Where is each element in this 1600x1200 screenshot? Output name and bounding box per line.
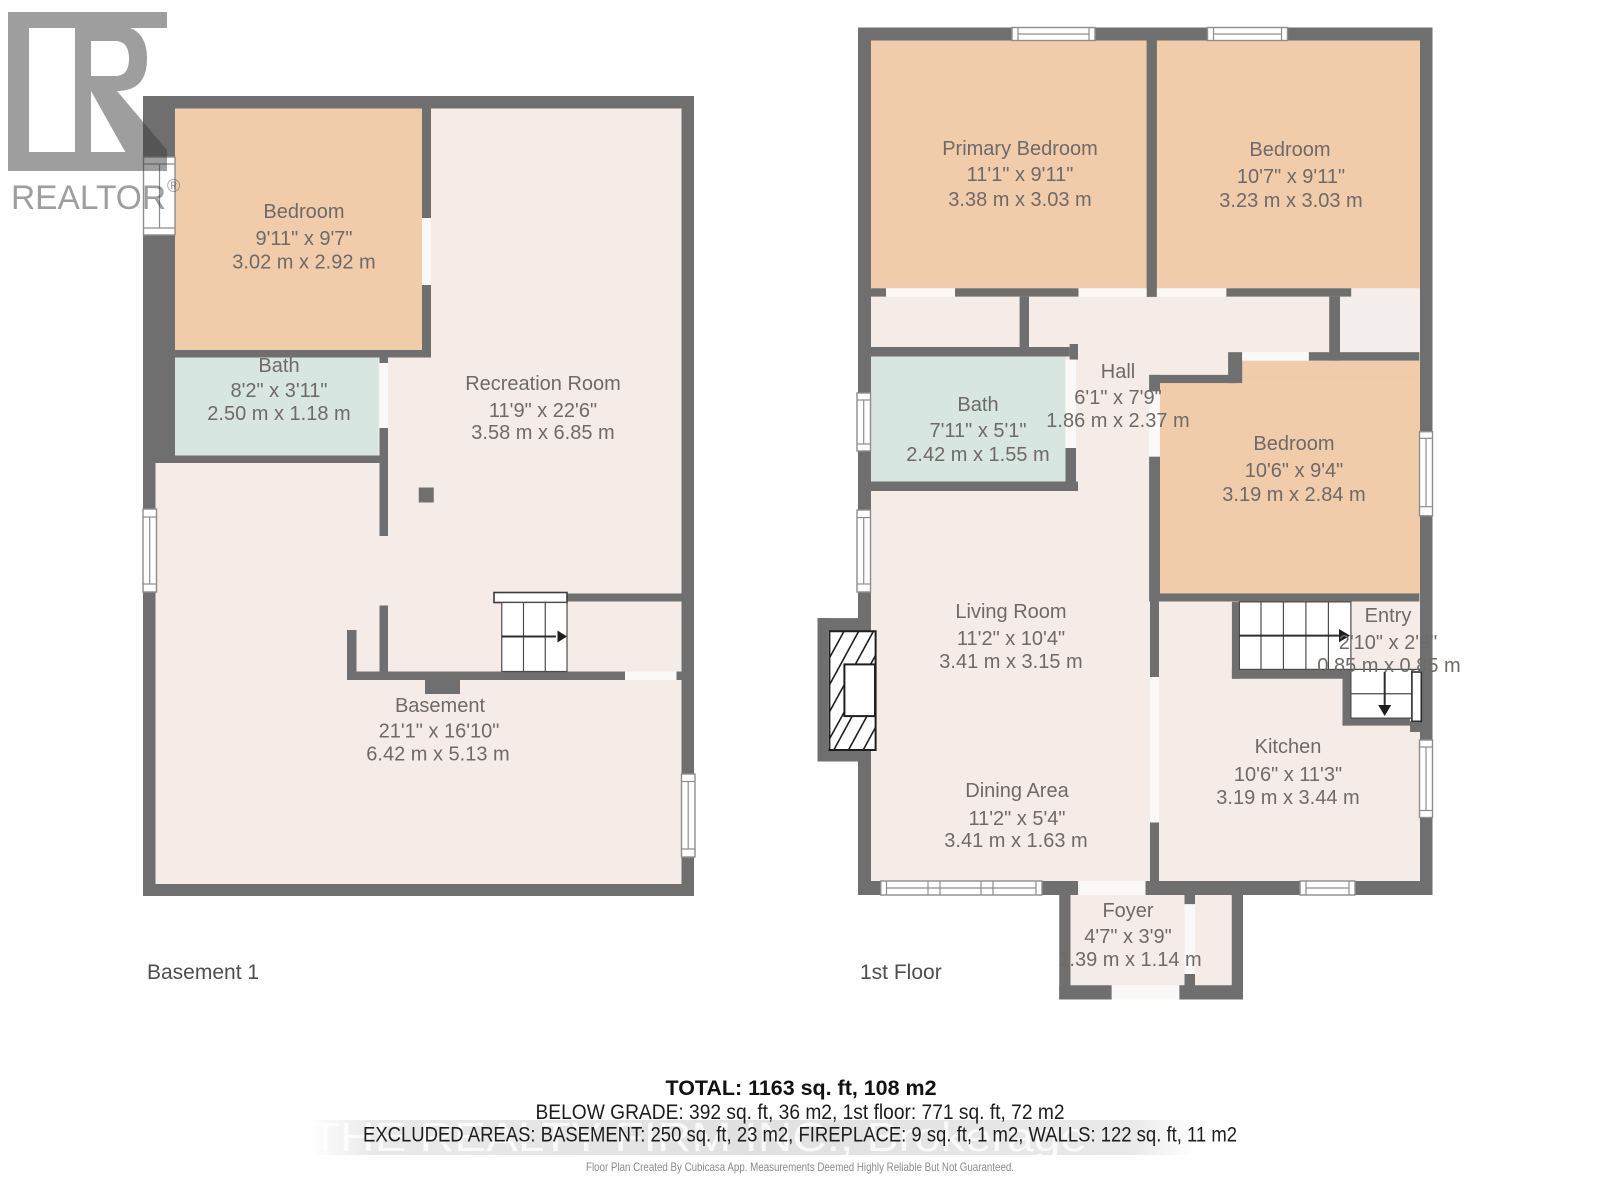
svg-text:®: ® [167, 176, 180, 196]
svg-text:3.38 m x 3.03 m: 3.38 m x 3.03 m [948, 189, 1091, 211]
svg-text:Bedroom: Bedroom [1249, 139, 1330, 161]
svg-text:Hall: Hall [1101, 361, 1135, 383]
svg-text:9'11" x 9'7": 9'11" x 9'7" [255, 228, 352, 250]
svg-text:10'6" x 9'4": 10'6" x 9'4" [1245, 460, 1344, 482]
svg-text:1st Floor: 1st Floor [860, 961, 942, 984]
svg-text:11'2" x 5'4": 11'2" x 5'4" [968, 808, 1065, 830]
svg-text:10'6" x 11'3": 10'6" x 11'3" [1234, 764, 1342, 786]
svg-text:1.86 m x 2.37 m: 1.86 m x 2.37 m [1046, 410, 1189, 432]
svg-text:2.50 m x 1.18 m: 2.50 m x 1.18 m [207, 403, 350, 425]
svg-text:BELOW GRADE: 392 sq. ft, 36 m2: BELOW GRADE: 392 sq. ft, 36 m2, 1st floo… [536, 1101, 1065, 1124]
svg-text:3.02 m x 2.92 m: 3.02 m x 2.92 m [232, 252, 375, 274]
svg-text:Dining Area: Dining Area [965, 780, 1069, 802]
svg-text:REALTOR: REALTOR [11, 179, 166, 217]
svg-text:Bath: Bath [258, 355, 299, 377]
svg-text:11'2" x 10'4": 11'2" x 10'4" [957, 628, 1065, 650]
svg-text:Basement: Basement [395, 695, 485, 717]
svg-text:Floor Plan Created By Cubicasa: Floor Plan Created By Cubicasa App. Meas… [586, 1160, 1014, 1174]
svg-text:3.19 m x 3.44 m: 3.19 m x 3.44 m [1216, 787, 1359, 809]
svg-text:TOTAL: 1163 sq. ft, 108 m2: TOTAL: 1163 sq. ft, 108 m2 [666, 1076, 937, 1100]
svg-text:Recreation Room: Recreation Room [465, 373, 621, 395]
svg-text:Bedroom: Bedroom [1253, 433, 1334, 455]
svg-text:8'2" x 3'11": 8'2" x 3'11" [230, 380, 327, 402]
svg-text:2.42 m x 1.55 m: 2.42 m x 1.55 m [906, 444, 1049, 466]
svg-text:Bath: Bath [957, 394, 998, 416]
svg-text:2'10" x 2'9": 2'10" x 2'9" [1339, 632, 1438, 654]
svg-text:Living Room: Living Room [955, 601, 1066, 623]
svg-text:3.41 m x 3.15 m: 3.41 m x 3.15 m [939, 651, 1082, 673]
svg-text:6.42 m x 5.13 m: 6.42 m x 5.13 m [366, 744, 509, 766]
svg-text:3.23 m x 3.03 m: 3.23 m x 3.03 m [1219, 190, 1362, 212]
svg-text:Primary Bedroom: Primary Bedroom [942, 138, 1098, 160]
svg-text:Foyer: Foyer [1102, 900, 1153, 922]
svg-text:6'1" x 7'9": 6'1" x 7'9" [1074, 387, 1161, 409]
svg-text:7'11" x 5'1": 7'11" x 5'1" [929, 420, 1026, 442]
svg-text:11'9" x 22'6": 11'9" x 22'6" [489, 400, 597, 422]
svg-text:0.85 m x 0.85 m: 0.85 m x 0.85 m [1317, 655, 1460, 677]
svg-text:10'7" x 9'11": 10'7" x 9'11" [1237, 166, 1345, 188]
svg-text:Kitchen: Kitchen [1255, 736, 1322, 758]
svg-text:3.19 m x 2.84 m: 3.19 m x 2.84 m [1222, 484, 1365, 506]
svg-text:Entry: Entry [1365, 605, 1412, 627]
svg-text:21'1" x 16'10": 21'1" x 16'10" [379, 721, 500, 743]
svg-text:3.41 m x 1.63 m: 3.41 m x 1.63 m [944, 830, 1087, 852]
svg-text:Basement 1: Basement 1 [147, 961, 259, 984]
svg-text:Bedroom: Bedroom [263, 201, 344, 223]
svg-text:EXCLUDED AREAS: BASEMENT: 250: EXCLUDED AREAS: BASEMENT: 250 sq. ft, 23… [363, 1124, 1237, 1147]
svg-text:11'1" x 9'11": 11'1" x 9'11" [967, 164, 1074, 186]
svg-text:4'7" x 3'9": 4'7" x 3'9" [1084, 926, 1171, 948]
svg-text:3.58 m x 6.85 m: 3.58 m x 6.85 m [471, 422, 614, 444]
svg-text:1.39 m x 1.14 m: 1.39 m x 1.14 m [1058, 949, 1201, 971]
